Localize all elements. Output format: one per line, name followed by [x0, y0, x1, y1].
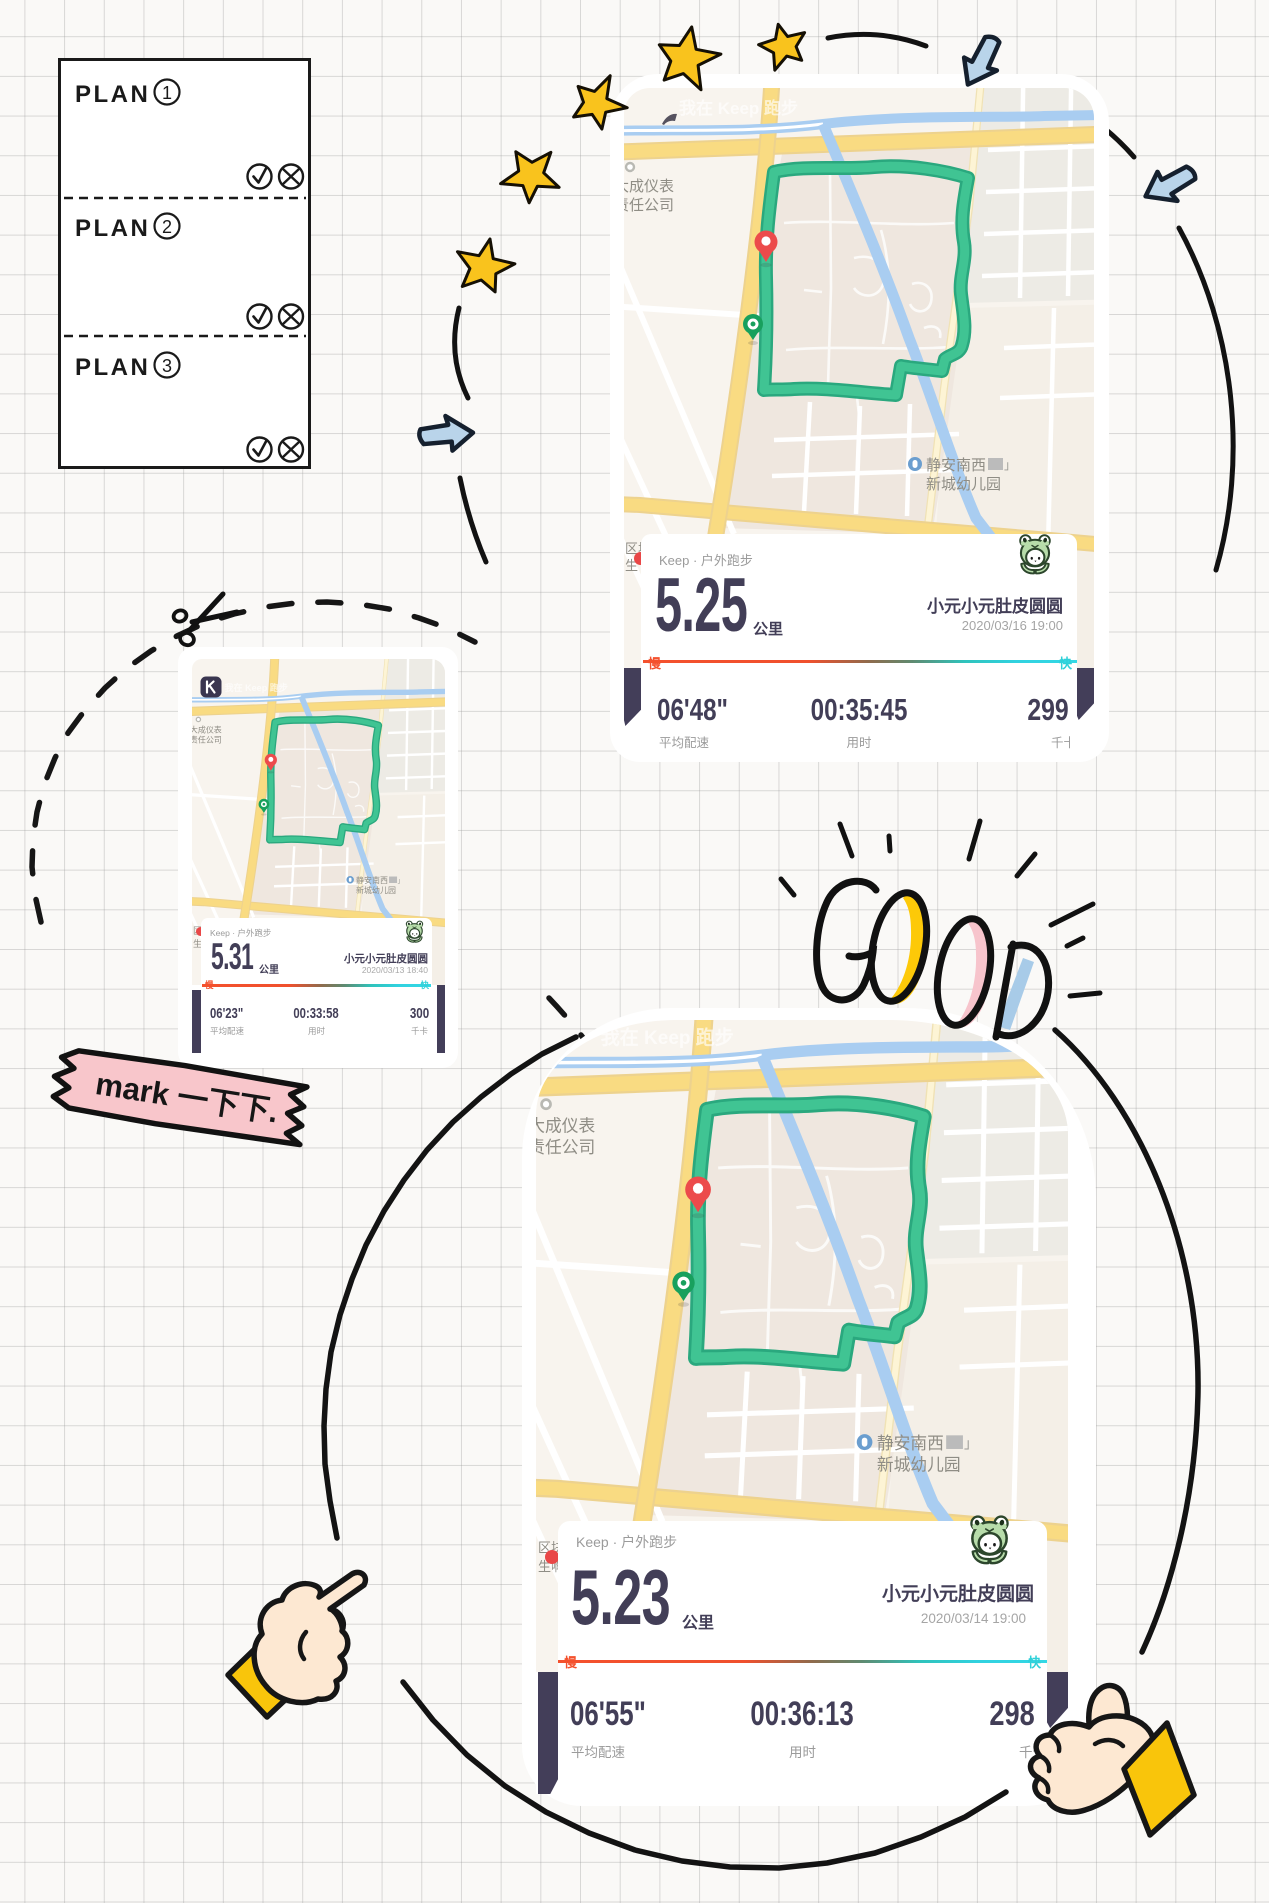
svg-text:PLAN: PLAN [75, 81, 150, 108]
svg-text:3: 3 [161, 356, 171, 376]
svg-text:PLAN: PLAN [75, 215, 150, 242]
svg-text:2: 2 [161, 217, 171, 237]
svg-text:1: 1 [161, 83, 171, 103]
svg-text:PLAN: PLAN [75, 354, 150, 381]
